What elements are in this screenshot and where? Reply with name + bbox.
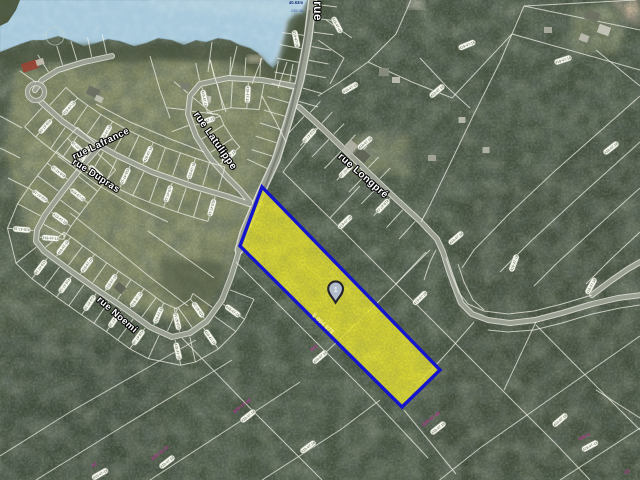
svg-text:rue: rue (311, 1, 325, 21)
svg-text:135.39: 135.39 (291, 8, 304, 13)
svg-text:419-47-18: 419-47-18 (245, 86, 250, 103)
svg-text:40.63m: 40.63m (289, 0, 303, 5)
